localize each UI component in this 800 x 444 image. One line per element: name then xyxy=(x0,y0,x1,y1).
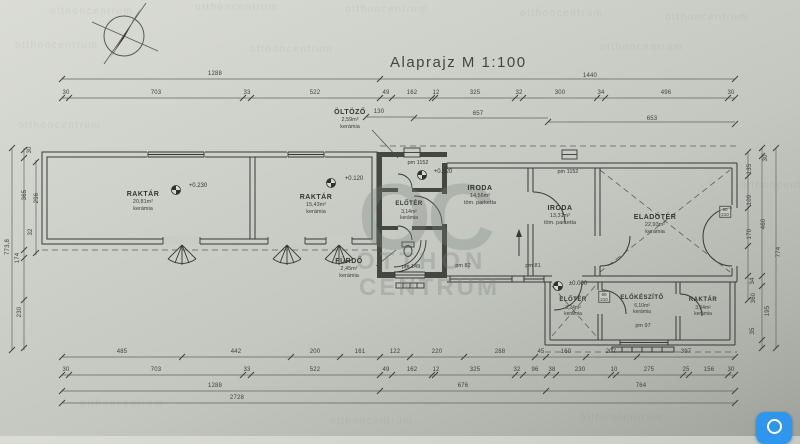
door-size-label: 90 210 xyxy=(598,291,610,303)
dim-value: 200 xyxy=(310,349,321,355)
window-sill-label: pm 97 xyxy=(635,323,650,329)
elevation-label: +0.120 xyxy=(345,176,364,182)
room-label-eladoter: ELADÓTÉR 22,93m² kerámia xyxy=(634,213,677,236)
dim-value: 764 xyxy=(636,383,647,389)
dim-value: 170 xyxy=(747,229,753,240)
dim-value: 49 xyxy=(382,90,389,96)
dim-value: 32 xyxy=(515,90,522,96)
dim-value: 109 xyxy=(747,195,753,206)
dim-value: 774 xyxy=(776,247,782,258)
window-sill-label: pm 1152 xyxy=(558,169,579,175)
room-label-oltozo: ÖLTÖZŐ 2,59m² kerámia xyxy=(334,108,366,131)
room-area: 22,93m² xyxy=(634,222,677,229)
watermark-word-otthon: OTTHON xyxy=(356,250,487,274)
dim-value: 130 xyxy=(374,109,385,115)
dim-value: 300 xyxy=(555,90,566,96)
dim-value: 30 xyxy=(27,146,33,153)
dim-value: 522 xyxy=(310,90,321,96)
room-name: ELŐTÉR xyxy=(395,201,422,209)
room-label-raktar-3: RAKTÁR 3,04m² kerámia xyxy=(689,297,717,318)
dim-value: 230 xyxy=(575,367,586,373)
dim-value: 25 xyxy=(682,367,689,373)
chat-icon xyxy=(767,419,782,434)
room-floor: kerámia xyxy=(620,309,663,316)
dim-value: 12 xyxy=(432,367,439,373)
dim-value: 160 xyxy=(561,349,572,355)
room-label-furdo: FÜRDŐ 2,45m² kerámia xyxy=(335,257,362,280)
dim-value: 485 xyxy=(117,349,128,355)
window-sill-label: pm 1152 xyxy=(408,160,429,166)
room-label-raktar-1: RAKTÁR 20,81m² kerámia xyxy=(127,190,160,213)
dim-value: 275 xyxy=(644,367,655,373)
dim-value: 653 xyxy=(647,116,658,122)
room-label-iroda-2: IRODA 13,31m² töm. parketta xyxy=(544,204,576,227)
room-area: 2,59m² xyxy=(334,117,366,124)
dim-value: 288 xyxy=(495,349,506,355)
room-area: 14,56m² xyxy=(464,193,496,200)
room-label-eloter-2: ELŐTÉR 3,24m² kerámia xyxy=(559,297,586,318)
dim-value: 34 xyxy=(750,277,756,284)
dim-value: 38 xyxy=(548,367,555,373)
dim-value: 442 xyxy=(231,349,242,355)
plan-title: Alaprajz M 1:100 xyxy=(390,54,527,71)
dim-value: 207 xyxy=(606,349,617,355)
dim-value: 460 xyxy=(761,219,767,230)
room-name: RAKTÁR xyxy=(689,297,717,305)
dim-value: 30 xyxy=(763,154,769,161)
room-floor: töm. parketta xyxy=(464,200,496,207)
dim-value: 360 xyxy=(751,293,757,304)
room-floor: töm. parketta xyxy=(544,220,576,227)
dim-value: 325 xyxy=(470,90,481,96)
room-floor: kerámia xyxy=(634,229,677,236)
room-label-iroda-1: IRODA 14,56m² töm. parketta xyxy=(464,184,496,207)
chat-widget-button[interactable] xyxy=(756,412,792,444)
dim-value: 703 xyxy=(151,367,162,373)
room-name: IRODA xyxy=(544,204,576,213)
window-sill-label: pm 149 xyxy=(402,264,420,270)
room-label-eloter-1: ELŐTÉR 3,14m² kerámia xyxy=(395,201,422,222)
dim-value: 657 xyxy=(473,111,484,117)
dim-value: 2728 xyxy=(230,395,244,401)
dim-value: 122 xyxy=(390,349,401,355)
dim-value: 161 xyxy=(355,349,366,355)
elevation-label: ±0.000 xyxy=(569,281,587,287)
room-name: IRODA xyxy=(464,184,496,193)
room-name: ELŐKÉSZÍTŐ xyxy=(620,295,663,303)
room-floor: kerámia xyxy=(334,124,366,131)
door-height: 210 xyxy=(600,297,608,302)
room-area: 2,45m² xyxy=(335,266,362,273)
dim-value: 45 xyxy=(537,349,544,355)
dim-value: 32 xyxy=(513,367,520,373)
dim-value: 1440 xyxy=(583,73,597,79)
door-size-label: 90 210 xyxy=(719,206,731,218)
dim-value: 195 xyxy=(765,306,771,317)
room-floor: kerámia xyxy=(689,311,717,318)
dim-value: 30 xyxy=(727,90,734,96)
dim-value: 325 xyxy=(470,367,481,373)
dim-value: 773,8 xyxy=(5,239,11,255)
dim-value: 703 xyxy=(151,90,162,96)
door-height: 210 xyxy=(721,212,729,217)
dim-value: 174 xyxy=(15,253,21,264)
dim-value: 96 xyxy=(531,367,538,373)
room-name: RAKTÁR xyxy=(127,190,160,199)
north-arrow-icon xyxy=(92,3,158,64)
room-name: ELŐTÉR xyxy=(559,297,586,305)
room-label-raktar-2: RAKTÁR 15,43m² kerámia xyxy=(300,193,333,216)
scanned-floor-plan-page: { "title": "Alaprajz M 1:100", "watermar… xyxy=(0,0,800,436)
room-floor: kerámia xyxy=(559,311,586,318)
dim-value: 34 xyxy=(597,90,604,96)
dim-value: 230 xyxy=(17,307,23,318)
room-name: RAKTÁR xyxy=(300,193,333,202)
dim-value: 397 xyxy=(681,349,692,355)
dim-value: 35 xyxy=(750,327,756,334)
dim-value: 33 xyxy=(243,367,250,373)
dim-value: 162 xyxy=(407,367,418,373)
elevation-label: +0.120 xyxy=(434,169,453,175)
room-area: 20,81m² xyxy=(127,199,160,206)
dim-value: 30 xyxy=(62,367,69,373)
dim-value: 10 xyxy=(610,367,617,373)
room-floor: kerámia xyxy=(300,209,333,216)
dim-value: 220 xyxy=(432,349,443,355)
elevation-label: +0.230 xyxy=(189,183,208,189)
room-label-elokeszito: ELŐKÉSZÍTŐ 6,10m² kerámia xyxy=(620,295,663,316)
room-name: FÜRDŐ xyxy=(335,257,362,266)
room-floor: kerámia xyxy=(395,215,422,222)
dim-value: 162 xyxy=(407,90,418,96)
dim-value: 1288 xyxy=(208,71,222,77)
window-sill-label: pm 81 xyxy=(525,263,540,269)
room-area: 15,43m² xyxy=(300,202,333,209)
window-sill-label: pm 82 xyxy=(455,263,470,269)
dim-value: 135 xyxy=(747,164,753,175)
dim-value: 12 xyxy=(432,90,439,96)
room-floor: kerámia xyxy=(127,206,160,213)
dim-value: 676 xyxy=(458,383,469,389)
dim-value: 30 xyxy=(727,367,734,373)
dim-value: 30 xyxy=(62,90,69,96)
room-name: ÖLTÖZŐ xyxy=(334,108,366,117)
room-floor: kerámia xyxy=(335,273,362,280)
dim-value: 496 xyxy=(661,90,672,96)
room-name: ELADÓTÉR xyxy=(634,213,677,222)
dim-value: 32 xyxy=(28,228,34,235)
dim-value: 49 xyxy=(382,367,389,373)
dim-value: 156 xyxy=(704,367,715,373)
dim-value: 296 xyxy=(34,193,40,204)
dim-value: 1288 xyxy=(208,383,222,389)
dim-value: 365 xyxy=(22,190,28,201)
dim-value: 522 xyxy=(310,367,321,373)
watermark-word-centrum: CENTRUM xyxy=(359,276,500,300)
dim-value: 33 xyxy=(243,90,250,96)
room-area: 13,31m² xyxy=(544,213,576,220)
